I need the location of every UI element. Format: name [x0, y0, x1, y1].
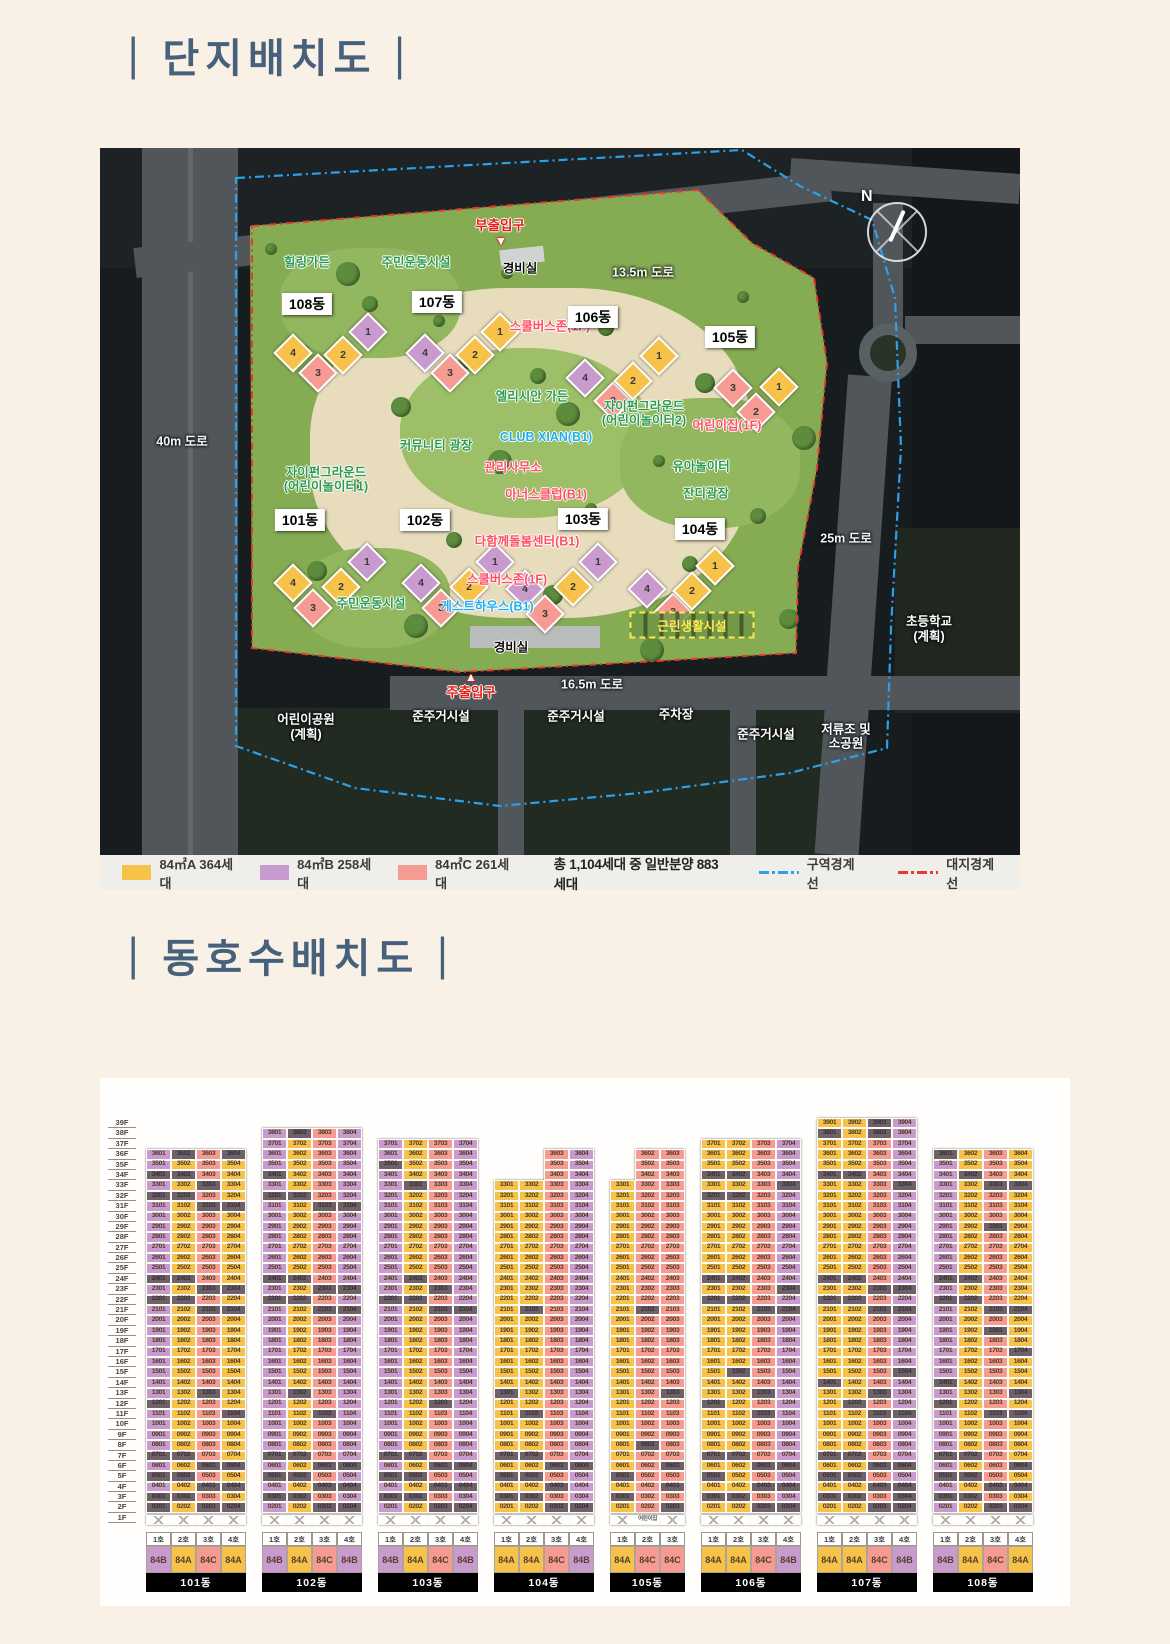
- unit-cell[interactable]: 3303: [312, 1180, 337, 1190]
- unit-cell[interactable]: 2404: [569, 1274, 594, 1284]
- unit-cell[interactable]: 0501: [378, 1471, 403, 1481]
- unit-cell[interactable]: 0903: [751, 1430, 776, 1440]
- unit-cell[interactable]: 1802: [726, 1336, 751, 1346]
- unit-cell[interactable]: 1802: [171, 1336, 196, 1346]
- unit-cell[interactable]: 1101: [378, 1409, 403, 1419]
- unit-cell[interactable]: 0402: [635, 1482, 660, 1492]
- unit-cell[interactable]: 3002: [403, 1212, 428, 1222]
- unit-cell[interactable]: 2803: [983, 1232, 1008, 1242]
- unit-cell[interactable]: 1701: [610, 1347, 635, 1357]
- unit-cell[interactable]: 3501: [378, 1160, 403, 1170]
- unit-cell[interactable]: 2203: [867, 1295, 892, 1305]
- unit-cell[interactable]: 2401: [817, 1274, 842, 1284]
- unit-cell[interactable]: 2601: [817, 1253, 842, 1263]
- unit-cell[interactable]: 2203: [428, 1295, 453, 1305]
- unit-cell[interactable]: 3302: [403, 1180, 428, 1190]
- unit-cell[interactable]: 3404: [776, 1170, 801, 1180]
- unit-cell[interactable]: 0401: [146, 1482, 171, 1492]
- unit-cell[interactable]: 1904: [221, 1326, 246, 1336]
- unit-cell[interactable]: 1404: [337, 1378, 362, 1388]
- unit-cell[interactable]: 3101: [494, 1201, 519, 1211]
- unit-cell[interactable]: 2503: [751, 1263, 776, 1273]
- unit-cell[interactable]: 1501: [933, 1367, 958, 1377]
- unit-cell[interactable]: 0503: [196, 1471, 221, 1481]
- unit-cell[interactable]: 0404: [569, 1482, 594, 1492]
- unit-cell[interactable]: 3703: [867, 1139, 892, 1149]
- unit-cell[interactable]: 3304: [569, 1180, 594, 1190]
- unit-cell[interactable]: 3504: [1008, 1160, 1033, 1170]
- unit-cell[interactable]: 1002: [519, 1419, 544, 1429]
- unit-cell[interactable]: 1703: [544, 1347, 569, 1357]
- unit-cell[interactable]: 1501: [378, 1367, 403, 1377]
- unit-cell[interactable]: 1203: [428, 1399, 453, 1409]
- unit-cell[interactable]: 0401: [701, 1482, 726, 1492]
- unit-cell[interactable]: 2201: [817, 1295, 842, 1305]
- unit-cell[interactable]: 2504: [569, 1263, 594, 1273]
- unit-cell[interactable]: 2404: [776, 1274, 801, 1284]
- unit-cell[interactable]: 1404: [569, 1378, 594, 1388]
- unit-cell[interactable]: 0801: [262, 1440, 287, 1450]
- unit-cell[interactable]: 2803: [312, 1232, 337, 1242]
- unit-cell[interactable]: 1604: [1008, 1357, 1033, 1367]
- unit-cell[interactable]: 2003: [660, 1315, 685, 1325]
- unit-cell[interactable]: 1604: [337, 1357, 362, 1367]
- unit-cell[interactable]: 2703: [660, 1243, 685, 1253]
- unit-cell[interactable]: 0802: [519, 1440, 544, 1450]
- unit-cell[interactable]: 2501: [701, 1263, 726, 1273]
- unit-cell[interactable]: 3401: [701, 1170, 726, 1180]
- unit-cell[interactable]: 1702: [958, 1347, 983, 1357]
- unit-cell[interactable]: 3204: [569, 1191, 594, 1201]
- unit-cell[interactable]: 2401: [701, 1274, 726, 1284]
- unit-cell[interactable]: 1803: [660, 1336, 685, 1346]
- unit-cell[interactable]: 0902: [635, 1430, 660, 1440]
- unit-cell[interactable]: 0504: [337, 1471, 362, 1481]
- unit-cell[interactable]: 3501: [933, 1160, 958, 1170]
- unit-cell[interactable]: 3404: [337, 1170, 362, 1180]
- unit-cell[interactable]: 0204: [569, 1502, 594, 1512]
- unit-cell[interactable]: 0401: [933, 1482, 958, 1492]
- unit-cell[interactable]: 2902: [287, 1222, 312, 1232]
- unit-cell[interactable]: 3204: [892, 1191, 917, 1201]
- unit-cell[interactable]: 1201: [933, 1399, 958, 1409]
- unit-cell[interactable]: 3301: [378, 1180, 403, 1190]
- unit-cell[interactable]: 3501: [701, 1160, 726, 1170]
- unit-cell[interactable]: 3403: [983, 1170, 1008, 1180]
- unit-cell[interactable]: 2001: [378, 1315, 403, 1325]
- unit-cell[interactable]: 1202: [287, 1399, 312, 1409]
- unit-cell[interactable]: 1302: [403, 1388, 428, 1398]
- unit-cell[interactable]: 0401: [610, 1482, 635, 1492]
- unit-cell[interactable]: 0804: [1008, 1440, 1033, 1450]
- unit-cell[interactable]: 1303: [983, 1388, 1008, 1398]
- unit-cell[interactable]: 3001: [610, 1212, 635, 1222]
- unit-cell[interactable]: 0301: [701, 1492, 726, 1502]
- unit-cell[interactable]: 1203: [983, 1399, 1008, 1409]
- unit-cell[interactable]: 2004: [221, 1315, 246, 1325]
- unit-cell[interactable]: 3004: [453, 1212, 478, 1222]
- unit-cell[interactable]: 0401: [262, 1482, 287, 1492]
- unit-cell[interactable]: 0503: [312, 1471, 337, 1481]
- unit-cell[interactable]: 2004: [1008, 1315, 1033, 1325]
- unit-cell[interactable]: 3603: [428, 1149, 453, 1159]
- unit-cell[interactable]: 2501: [262, 1263, 287, 1273]
- unit-cell[interactable]: 3302: [287, 1180, 312, 1190]
- unit-cell[interactable]: 0202: [287, 1502, 312, 1512]
- unit-cell[interactable]: 1803: [312, 1336, 337, 1346]
- unit-cell[interactable]: 0702: [287, 1451, 312, 1461]
- unit-cell[interactable]: 0501: [146, 1471, 171, 1481]
- unit-cell[interactable]: 3001: [494, 1212, 519, 1222]
- unit-cell[interactable]: 3604: [569, 1149, 594, 1159]
- unit-cell[interactable]: 1401: [146, 1378, 171, 1388]
- unit-cell[interactable]: 1701: [262, 1347, 287, 1357]
- unit-cell[interactable]: 3604: [453, 1149, 478, 1159]
- unit-cell[interactable]: 2002: [171, 1315, 196, 1325]
- unit-cell[interactable]: 0303: [660, 1492, 685, 1502]
- unit-cell[interactable]: 1202: [842, 1399, 867, 1409]
- unit-cell[interactable]: 3001: [262, 1212, 287, 1222]
- unit-cell[interactable]: 2502: [171, 1263, 196, 1273]
- unit-cell[interactable]: 3502: [726, 1160, 751, 1170]
- unit-cell[interactable]: 1001: [817, 1419, 842, 1429]
- unit-cell[interactable]: 1402: [726, 1378, 751, 1388]
- unit-cell[interactable]: 0204: [892, 1502, 917, 1512]
- unit-cell[interactable]: 1402: [842, 1378, 867, 1388]
- unit-cell[interactable]: 3503: [867, 1160, 892, 1170]
- unit-cell[interactable]: 0901: [378, 1430, 403, 1440]
- unit-cell[interactable]: 2402: [635, 1274, 660, 1284]
- unit-cell[interactable]: 1404: [453, 1378, 478, 1388]
- unit-cell[interactable]: 0904: [1008, 1430, 1033, 1440]
- unit-cell[interactable]: 1301: [378, 1388, 403, 1398]
- unit-cell[interactable]: 2003: [428, 1315, 453, 1325]
- unit-cell[interactable]: 2003: [983, 1315, 1008, 1325]
- unit-cell[interactable]: 2903: [428, 1222, 453, 1232]
- unit-cell[interactable]: 1703: [867, 1347, 892, 1357]
- unit-cell[interactable]: 3501: [817, 1160, 842, 1170]
- unit-cell[interactable]: 3003: [428, 1212, 453, 1222]
- unit-cell[interactable]: 2004: [453, 1315, 478, 1325]
- unit-cell[interactable]: 3303: [983, 1180, 1008, 1190]
- unit-cell[interactable]: 3603: [983, 1149, 1008, 1159]
- unit-cell[interactable]: 2401: [378, 1274, 403, 1284]
- unit-cell[interactable]: 0604: [453, 1461, 478, 1471]
- unit-cell[interactable]: 0504: [221, 1471, 246, 1481]
- unit-cell[interactable]: 1901: [378, 1326, 403, 1336]
- unit-cell[interactable]: 1903: [544, 1326, 569, 1336]
- unit-cell[interactable]: 2904: [892, 1222, 917, 1232]
- unit-cell[interactable]: 3502: [171, 1160, 196, 1170]
- unit-cell[interactable]: 2001: [933, 1315, 958, 1325]
- unit-cell[interactable]: 0203: [196, 1502, 221, 1512]
- unit-cell[interactable]: 2602: [403, 1253, 428, 1263]
- unit-cell[interactable]: 0801: [933, 1440, 958, 1450]
- unit-cell[interactable]: 1701: [494, 1347, 519, 1357]
- unit-cell[interactable]: 0404: [453, 1482, 478, 1492]
- unit-cell[interactable]: 3701: [817, 1139, 842, 1149]
- unit-cell[interactable]: 1604: [221, 1357, 246, 1367]
- unit-cell[interactable]: 2904: [453, 1222, 478, 1232]
- unit-cell[interactable]: 2901: [494, 1222, 519, 1232]
- unit-cell[interactable]: 1304: [337, 1388, 362, 1398]
- unit-cell[interactable]: 3202: [842, 1191, 867, 1201]
- unit-cell[interactable]: 3403: [196, 1170, 221, 1180]
- unit-cell[interactable]: 1903: [751, 1326, 776, 1336]
- unit-cell[interactable]: 1204: [776, 1399, 801, 1409]
- unit-cell[interactable]: 2503: [196, 1263, 221, 1273]
- unit-cell[interactable]: 3002: [842, 1212, 867, 1222]
- unit-cell[interactable]: 0402: [287, 1482, 312, 1492]
- unit-cell[interactable]: 2204: [892, 1295, 917, 1305]
- unit-cell[interactable]: 2302: [726, 1284, 751, 1294]
- unit-cell[interactable]: 1302: [726, 1388, 751, 1398]
- unit-cell[interactable]: 3302: [726, 1180, 751, 1190]
- unit-cell[interactable]: 1504: [776, 1367, 801, 1377]
- unit-cell[interactable]: 3202: [287, 1191, 312, 1201]
- unit-cell[interactable]: 3304: [1008, 1180, 1033, 1190]
- unit-cell[interactable]: 0301: [494, 1492, 519, 1502]
- unit-cell[interactable]: 0701: [494, 1451, 519, 1461]
- unit-cell[interactable]: 3703: [428, 1139, 453, 1149]
- unit-cell[interactable]: 3102: [726, 1201, 751, 1211]
- unit-cell[interactable]: 3204: [776, 1191, 801, 1201]
- unit-cell[interactable]: 1701: [933, 1347, 958, 1357]
- unit-cell[interactable]: 0703: [544, 1451, 569, 1461]
- unit-cell[interactable]: 2001: [817, 1315, 842, 1325]
- unit-cell[interactable]: 0203: [751, 1502, 776, 1512]
- unit-cell[interactable]: 2703: [312, 1243, 337, 1253]
- unit-cell[interactable]: 0202: [519, 1502, 544, 1512]
- unit-cell[interactable]: 2801: [610, 1232, 635, 1242]
- unit-cell[interactable]: 0503: [428, 1471, 453, 1481]
- unit-cell[interactable]: 1103: [312, 1409, 337, 1419]
- unit-cell[interactable]: 2303: [196, 1284, 221, 1294]
- unit-cell[interactable]: 3402: [287, 1170, 312, 1180]
- unit-cell[interactable]: 2103: [867, 1305, 892, 1315]
- unit-cell[interactable]: 2902: [635, 1222, 660, 1232]
- unit-cell[interactable]: 2003: [751, 1315, 776, 1325]
- unit-cell[interactable]: 2902: [726, 1222, 751, 1232]
- unit-cell[interactable]: 3004: [569, 1212, 594, 1222]
- unit-cell[interactable]: 3601: [146, 1149, 171, 1159]
- unit-cell[interactable]: 1801: [817, 1336, 842, 1346]
- unit-cell[interactable]: 2203: [751, 1295, 776, 1305]
- unit-cell[interactable]: 2603: [312, 1253, 337, 1263]
- unit-cell[interactable]: 0303: [544, 1492, 569, 1502]
- unit-cell[interactable]: 1301: [146, 1388, 171, 1398]
- unit-cell[interactable]: 1304: [453, 1388, 478, 1398]
- unit-cell[interactable]: 3803: [867, 1128, 892, 1138]
- unit-cell[interactable]: 1401: [933, 1378, 958, 1388]
- unit-cell[interactable]: 3704: [453, 1139, 478, 1149]
- unit-cell[interactable]: 0304: [337, 1492, 362, 1502]
- unit-cell[interactable]: 0601: [701, 1461, 726, 1471]
- unit-cell[interactable]: 2601: [146, 1253, 171, 1263]
- unit-cell[interactable]: 0604: [569, 1461, 594, 1471]
- unit-cell[interactable]: 1902: [842, 1326, 867, 1336]
- unit-cell[interactable]: 2204: [221, 1295, 246, 1305]
- unit-cell[interactable]: 2603: [867, 1253, 892, 1263]
- unit-cell[interactable]: 1901: [610, 1326, 635, 1336]
- unit-cell[interactable]: 1602: [842, 1357, 867, 1367]
- unit-cell[interactable]: 3504: [776, 1160, 801, 1170]
- unit-cell[interactable]: 0203: [660, 1502, 685, 1512]
- unit-cell[interactable]: 2604: [892, 1253, 917, 1263]
- unit-cell[interactable]: 1102: [171, 1409, 196, 1419]
- unit-cell[interactable]: 3301: [933, 1180, 958, 1190]
- unit-cell[interactable]: 1503: [312, 1367, 337, 1377]
- unit-cell[interactable]: 0501: [494, 1471, 519, 1481]
- unit-cell[interactable]: 1204: [1008, 1399, 1033, 1409]
- unit-cell[interactable]: 1104: [1008, 1409, 1033, 1419]
- unit-cell[interactable]: 1403: [751, 1378, 776, 1388]
- unit-cell[interactable]: 1401: [378, 1378, 403, 1388]
- unit-cell[interactable]: 1601: [610, 1357, 635, 1367]
- unit-cell[interactable]: 1304: [569, 1388, 594, 1398]
- unit-cell[interactable]: 1603: [312, 1357, 337, 1367]
- unit-cell[interactable]: 3702: [287, 1139, 312, 1149]
- unit-cell[interactable]: 0502: [635, 1471, 660, 1481]
- unit-cell[interactable]: 2202: [635, 1295, 660, 1305]
- unit-cell[interactable]: 2202: [171, 1295, 196, 1305]
- unit-cell[interactable]: 2702: [958, 1243, 983, 1253]
- unit-cell[interactable]: 1201: [494, 1399, 519, 1409]
- unit-cell[interactable]: 1603: [544, 1357, 569, 1367]
- unit-cell[interactable]: 2801: [494, 1232, 519, 1242]
- unit-cell[interactable]: 1902: [519, 1326, 544, 1336]
- unit-cell[interactable]: 0301: [262, 1492, 287, 1502]
- unit-cell[interactable]: 3601: [933, 1149, 958, 1159]
- unit-cell[interactable]: 0603: [867, 1461, 892, 1471]
- unit-cell[interactable]: 3603: [660, 1149, 685, 1159]
- unit-cell[interactable]: 1504: [453, 1367, 478, 1377]
- unit-cell[interactable]: 1002: [726, 1419, 751, 1429]
- unit-cell[interactable]: 1101: [494, 1409, 519, 1419]
- unit-cell[interactable]: 1602: [519, 1357, 544, 1367]
- unit-cell[interactable]: 1902: [287, 1326, 312, 1336]
- unit-cell[interactable]: 2904: [1008, 1222, 1033, 1232]
- unit-cell[interactable]: 0301: [146, 1492, 171, 1502]
- unit-cell[interactable]: 1204: [337, 1399, 362, 1409]
- unit-cell[interactable]: 1904: [1008, 1326, 1033, 1336]
- unit-cell[interactable]: 3402: [726, 1170, 751, 1180]
- unit-cell[interactable]: 0801: [817, 1440, 842, 1450]
- unit-cell[interactable]: 2503: [428, 1263, 453, 1273]
- unit-cell[interactable]: 0603: [196, 1461, 221, 1471]
- unit-cell[interactable]: 0903: [428, 1430, 453, 1440]
- unit-cell[interactable]: 2102: [958, 1305, 983, 1315]
- unit-cell[interactable]: 1204: [892, 1399, 917, 1409]
- unit-cell[interactable]: 3503: [983, 1160, 1008, 1170]
- unit-cell[interactable]: 0303: [428, 1492, 453, 1502]
- unit-cell[interactable]: 3602: [171, 1149, 196, 1159]
- unit-cell[interactable]: 2103: [544, 1305, 569, 1315]
- unit-cell[interactable]: 1303: [751, 1388, 776, 1398]
- unit-cell[interactable]: 2802: [287, 1232, 312, 1242]
- unit-cell[interactable]: 0401: [817, 1482, 842, 1492]
- unit-cell[interactable]: 1701: [701, 1347, 726, 1357]
- unit-cell[interactable]: 0904: [337, 1430, 362, 1440]
- unit-cell[interactable]: 1604: [776, 1357, 801, 1367]
- unit-cell[interactable]: 2904: [569, 1222, 594, 1232]
- unit-cell[interactable]: 3603: [196, 1149, 221, 1159]
- unit-cell[interactable]: 1403: [312, 1378, 337, 1388]
- unit-cell[interactable]: 3603: [867, 1149, 892, 1159]
- unit-cell[interactable]: 1403: [867, 1378, 892, 1388]
- unit-cell[interactable]: 3102: [519, 1201, 544, 1211]
- unit-cell[interactable]: 1602: [958, 1357, 983, 1367]
- unit-cell[interactable]: 1403: [428, 1378, 453, 1388]
- unit-cell[interactable]: 0403: [867, 1482, 892, 1492]
- unit-cell[interactable]: 0204: [1008, 1502, 1033, 1512]
- unit-cell[interactable]: 1704: [776, 1347, 801, 1357]
- unit-cell[interactable]: 2304: [453, 1284, 478, 1294]
- unit-cell[interactable]: 1403: [983, 1378, 1008, 1388]
- unit-cell[interactable]: 1903: [428, 1326, 453, 1336]
- unit-cell[interactable]: 2603: [751, 1253, 776, 1263]
- unit-cell[interactable]: 2002: [287, 1315, 312, 1325]
- unit-cell[interactable]: 2301: [610, 1284, 635, 1294]
- unit-cell[interactable]: 1203: [867, 1399, 892, 1409]
- unit-cell[interactable]: 0902: [287, 1430, 312, 1440]
- unit-cell[interactable]: 0802: [403, 1440, 428, 1450]
- unit-cell[interactable]: 3503: [196, 1160, 221, 1170]
- unit-cell[interactable]: 3104: [337, 1201, 362, 1211]
- unit-cell[interactable]: 0903: [867, 1430, 892, 1440]
- unit-cell[interactable]: 0701: [262, 1451, 287, 1461]
- unit-cell[interactable]: 2701: [701, 1243, 726, 1253]
- unit-cell[interactable]: 2201: [933, 1295, 958, 1305]
- unit-cell[interactable]: 2703: [544, 1243, 569, 1253]
- unit-cell[interactable]: 1104: [776, 1409, 801, 1419]
- unit-cell[interactable]: 0904: [569, 1430, 594, 1440]
- unit-cell[interactable]: 3601: [262, 1149, 287, 1159]
- unit-cell[interactable]: 1703: [312, 1347, 337, 1357]
- unit-cell[interactable]: 2702: [519, 1243, 544, 1253]
- unit-cell[interactable]: 2903: [196, 1222, 221, 1232]
- unit-cell[interactable]: 3404: [892, 1170, 917, 1180]
- unit-cell[interactable]: 1602: [287, 1357, 312, 1367]
- unit-cell[interactable]: 1404: [776, 1378, 801, 1388]
- unit-cell[interactable]: 0902: [726, 1430, 751, 1440]
- unit-cell[interactable]: 1004: [569, 1419, 594, 1429]
- unit-cell[interactable]: 0703: [751, 1451, 776, 1461]
- unit-cell[interactable]: 3904: [892, 1118, 917, 1128]
- unit-cell[interactable]: 1002: [842, 1419, 867, 1429]
- unit-cell[interactable]: 2202: [726, 1295, 751, 1305]
- unit-cell[interactable]: 0602: [171, 1461, 196, 1471]
- unit-cell[interactable]: 2802: [171, 1232, 196, 1242]
- unit-cell[interactable]: 3901: [817, 1118, 842, 1128]
- unit-cell[interactable]: 3101: [701, 1201, 726, 1211]
- unit-cell[interactable]: 2304: [221, 1284, 246, 1294]
- unit-cell[interactable]: 3802: [287, 1128, 312, 1138]
- unit-cell[interactable]: 0802: [171, 1440, 196, 1450]
- unit-cell[interactable]: 1003: [867, 1419, 892, 1429]
- unit-cell[interactable]: 2002: [726, 1315, 751, 1325]
- unit-cell[interactable]: 1603: [867, 1357, 892, 1367]
- unit-cell[interactable]: 2201: [146, 1295, 171, 1305]
- unit-cell[interactable]: 2403: [312, 1274, 337, 1284]
- unit-cell[interactable]: 1703: [196, 1347, 221, 1357]
- unit-cell[interactable]: 3301: [701, 1180, 726, 1190]
- unit-cell[interactable]: 1801: [933, 1336, 958, 1346]
- unit-cell[interactable]: 0604: [221, 1461, 246, 1471]
- unit-cell[interactable]: 0304: [776, 1492, 801, 1502]
- unit-cell[interactable]: 1901: [146, 1326, 171, 1336]
- unit-cell[interactable]: 1801: [701, 1336, 726, 1346]
